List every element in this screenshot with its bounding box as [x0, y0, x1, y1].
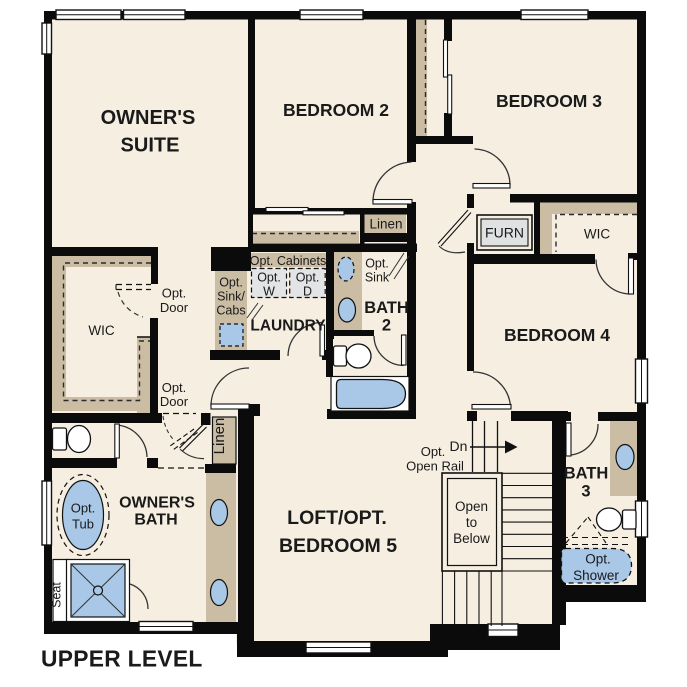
svg-text:Opt.: Opt.	[296, 271, 320, 285]
svg-text:UPPER LEVEL: UPPER LEVEL	[41, 646, 203, 672]
svg-text:OWNER'S: OWNER'S	[101, 107, 196, 129]
svg-text:FURN: FURN	[485, 225, 524, 241]
svg-text:BATH: BATH	[134, 512, 177, 529]
svg-text:Linen: Linen	[369, 217, 402, 232]
svg-text:BEDROOM 4: BEDROOM 4	[504, 325, 610, 345]
svg-text:Sink/: Sink/	[217, 290, 245, 304]
svg-text:Shower: Shower	[573, 568, 619, 583]
svg-text:to: to	[466, 515, 477, 530]
svg-text:Linen: Linen	[211, 418, 228, 455]
svg-text:Seat: Seat	[50, 582, 64, 608]
svg-text:BEDROOM 5: BEDROOM 5	[279, 535, 397, 557]
svg-text:Opt.: Opt.	[585, 552, 611, 567]
svg-text:BATH: BATH	[364, 299, 409, 317]
svg-text:Dn: Dn	[450, 438, 468, 454]
svg-text:Sink: Sink	[365, 271, 390, 285]
svg-text:Cabs: Cabs	[216, 304, 245, 318]
svg-text:2: 2	[382, 317, 391, 335]
svg-text:OWNER'S: OWNER'S	[119, 495, 195, 512]
svg-text:Open Rail: Open Rail	[406, 459, 464, 474]
svg-text:D: D	[303, 285, 312, 299]
svg-text:Open: Open	[455, 499, 488, 514]
svg-text:Opt. Cabinets: Opt. Cabinets	[250, 254, 326, 268]
svg-text:Tub: Tub	[72, 517, 94, 532]
svg-text:3: 3	[581, 483, 590, 501]
svg-text:LAUNDRY: LAUNDRY	[250, 318, 326, 335]
svg-text:Door: Door	[160, 394, 189, 409]
svg-text:WIC: WIC	[88, 323, 114, 338]
svg-text:BEDROOM 3: BEDROOM 3	[496, 91, 602, 111]
svg-text:Below: Below	[453, 531, 490, 546]
svg-text:Opt.: Opt.	[71, 501, 96, 516]
svg-text:Opt.: Opt.	[257, 271, 281, 285]
svg-text:LOFT/OPT.: LOFT/OPT.	[287, 507, 387, 529]
svg-text:Opt.: Opt.	[162, 380, 187, 395]
svg-text:WIC: WIC	[584, 227, 610, 242]
svg-text:W: W	[263, 285, 275, 299]
svg-text:SUITE: SUITE	[121, 135, 180, 157]
svg-text:Opt.: Opt.	[219, 276, 243, 290]
svg-text:Opt.: Opt.	[365, 257, 389, 271]
svg-text:BEDROOM 2: BEDROOM 2	[283, 100, 389, 120]
svg-text:Door: Door	[160, 300, 189, 315]
svg-text:BATH: BATH	[564, 465, 609, 483]
svg-text:Opt.: Opt.	[162, 286, 187, 301]
svg-text:Opt.: Opt.	[421, 444, 446, 459]
